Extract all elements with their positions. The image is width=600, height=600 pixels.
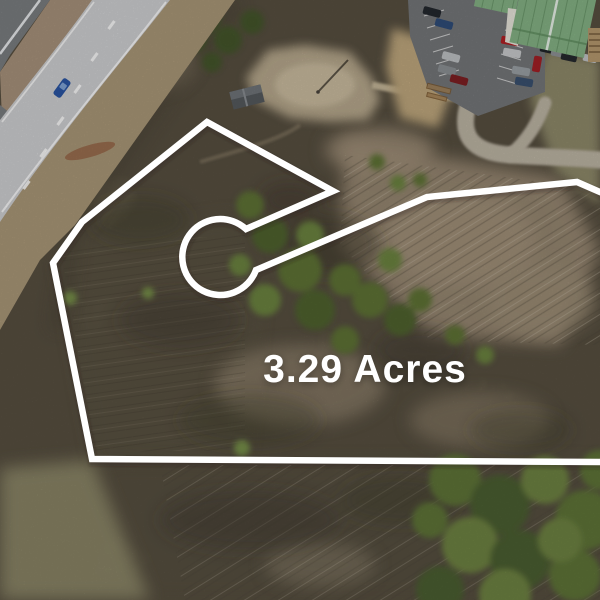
aerial-photo-canvas xyxy=(0,0,600,600)
acreage-label: 3.29 Acres xyxy=(263,348,467,392)
photo-grain xyxy=(0,0,600,600)
aerial-photo: 3.29 Acres xyxy=(0,0,600,600)
